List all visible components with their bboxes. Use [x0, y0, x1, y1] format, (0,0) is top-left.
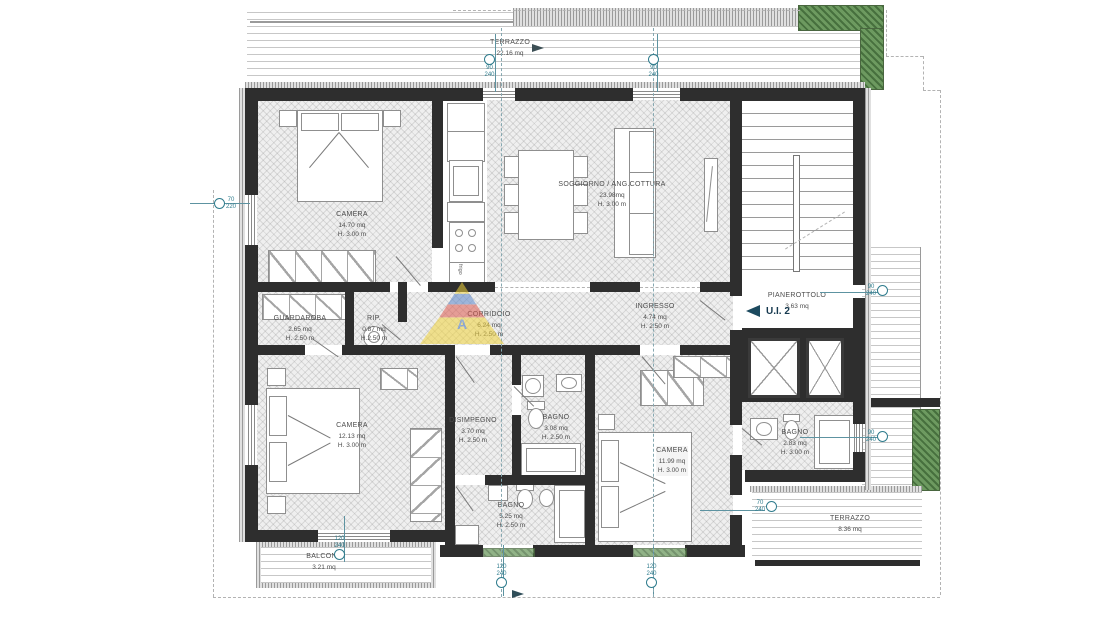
marker-window-south-right: 120 240 [646, 564, 657, 588]
bidet-bowl [539, 489, 554, 507]
window-sill-south-1 [483, 548, 535, 557]
marker-window-bagno-est: 90 240 [866, 430, 888, 443]
marker-value: 90 240 [866, 284, 876, 297]
fridge-label: frigo [457, 264, 463, 275]
kitchen-stove [449, 222, 485, 264]
sink-basin [561, 377, 577, 389]
room-label-camera1: CAMERA 14.70 mq H. 3.00 m [336, 210, 368, 240]
room-area: 2.83 mq [781, 439, 809, 449]
opening-dash-ingresso [640, 287, 700, 288]
room-name: BAGNO [542, 413, 570, 424]
opening-dash-living [495, 287, 590, 288]
room-label-camera2: CAMERA 12.13 mq H. 3.00 m [336, 421, 368, 451]
wall-corridor-top-1 [257, 282, 390, 292]
room-area: 8.36 mq [830, 525, 870, 535]
wall-north-2 [515, 88, 633, 101]
room-label-guardaroba: GUARDAROBA 2.65 mq H. 2.50 m [274, 314, 327, 344]
pillow [341, 113, 379, 131]
room-area: 4.74 mq [635, 313, 674, 323]
room-name: SOGGIORNO / ANG.COTTURA [558, 180, 665, 191]
nightstand [279, 110, 297, 127]
nightstand [267, 368, 286, 386]
shower-tray-inner [819, 420, 850, 464]
pillow [269, 442, 287, 482]
wall-camera1-living [432, 88, 443, 248]
room-label-disimpegno: DISIMPEGNO 3.70 mq H. 2.50 m [449, 416, 497, 446]
room-height: H. 3.00 m [336, 441, 368, 451]
wall-west-2 [245, 245, 258, 405]
room-height: H. 3.00 m [336, 230, 368, 240]
room-name: RIP. [361, 314, 387, 325]
floor-disimpegno [455, 355, 512, 475]
marker-circle [496, 577, 507, 588]
pillow [601, 486, 619, 528]
watermark-letter: A [420, 316, 504, 332]
room-name: CAMERA [336, 210, 368, 221]
wall-corridor-bottom-3 [490, 345, 640, 355]
kitchen-cabinet [447, 131, 485, 162]
pillow [269, 396, 287, 436]
room-name: PIANEROTTOLO [768, 291, 826, 302]
wall-camera3-east-1 [730, 455, 742, 495]
kitchen-fridge [449, 262, 485, 284]
burner [468, 229, 476, 237]
wardrobe-camera1 [268, 250, 376, 284]
kitchen-counter [447, 202, 485, 222]
marker-value: 120 240 [496, 564, 506, 577]
cavedio-shaft [806, 338, 844, 398]
boundary-dash-step2 [886, 56, 923, 57]
room-height: H. 3.00 m [781, 448, 809, 458]
room-height: H. 2.50 m [274, 334, 327, 344]
wall-east-3 [853, 452, 865, 470]
wall-east-2 [853, 298, 865, 424]
wall-north-3 [680, 88, 865, 101]
chair [573, 212, 588, 234]
shower-tray-inner [559, 490, 585, 538]
sofa-cushion [629, 213, 654, 255]
unit-arrow-icon [746, 305, 760, 317]
wall-guardaroba-rip [345, 282, 354, 355]
kitchen-cabinet [447, 103, 485, 133]
room-name: DISIMPEGNO [449, 416, 497, 427]
marker-circle [646, 577, 657, 588]
room-label-bagno-centro: BAGNO 3.08 mq H. 2.50 m [542, 413, 570, 443]
pillow [601, 440, 619, 482]
wall-corridor-top-3 [590, 282, 640, 292]
nightstand [383, 110, 401, 127]
marker-circle [214, 198, 225, 209]
room-area: 3.21 mq [306, 563, 342, 573]
wall-disimpegno-bagno-2 [512, 415, 521, 480]
marker-window-top-left: 90 240 [484, 54, 495, 78]
section-line-b [653, 28, 654, 597]
room-label-soggiorno: SOGGIORNO / ANG.COTTURA 23.98mq H. 3.00 … [558, 180, 665, 210]
marker-window-west: 70 220 [214, 197, 236, 210]
room-name: TERRAZZO [830, 514, 870, 525]
sofa-cushion [629, 131, 654, 173]
marker-value: 120 240 [646, 564, 656, 577]
wall-west-1 [245, 88, 258, 195]
watermark-logo: A [420, 282, 504, 344]
room-area: 11.99 mq [656, 457, 688, 467]
room-label-terrazzo-sud: TERRAZZO 8.36 mq [830, 514, 870, 534]
room-label-rip: RIP. 0.87 mq H.2.50 m [361, 314, 387, 344]
chair [573, 156, 588, 178]
chair [504, 212, 519, 234]
pillow [301, 113, 339, 131]
wall-corridor-bottom-4 [680, 345, 733, 355]
wardrobe-camera2 [410, 428, 442, 522]
chair [504, 156, 519, 178]
room-label-bagno-est: BAGNO 2.83 mq H. 3.00 m [781, 428, 809, 458]
boundary-dash-bottom [213, 597, 940, 598]
wall-camera3-east-2 [730, 515, 742, 557]
marker-balcony-door: 120 240 [334, 536, 345, 560]
wall-north-1 [245, 88, 483, 101]
room-area: 2.65 mq [274, 325, 327, 335]
window-sill-south-2 [633, 548, 687, 557]
wall-camera2-disimpegno [445, 355, 455, 557]
marker-door-landing-terrace: 90 240 [866, 284, 888, 297]
marker-window-top-right: 90 240 [648, 54, 659, 78]
room-name: GUARDAROBA [274, 314, 327, 325]
room-name: CAMERA [336, 421, 368, 432]
marker-window-south-left: 120 240 [496, 564, 507, 588]
marker-stem [495, 34, 496, 92]
window-north-2 [633, 91, 680, 98]
room-area: 3.08 mq [542, 424, 570, 434]
room-height: H. 2.50 m [635, 322, 674, 332]
room-height: H. 2.50 m [542, 433, 570, 443]
planter-east [912, 409, 940, 491]
washer-drum [525, 378, 541, 394]
marker-value: 90 240 [484, 65, 494, 78]
unit-label: U.I. 2 [766, 306, 790, 317]
room-area: 14.70 mq [336, 221, 368, 231]
wall-corridor-top-4 [700, 282, 733, 292]
boundary-dash-top [453, 10, 800, 11]
marker-value: 70 220 [226, 197, 236, 210]
marker-value: 70 240 [755, 500, 765, 513]
nightstand [598, 414, 615, 430]
burner [455, 244, 463, 252]
wardrobe-ingresso [673, 356, 735, 378]
wall-rip-corridoio-2 [398, 345, 407, 355]
room-area: 3.70 mq [449, 427, 497, 437]
marker-circle [648, 54, 659, 65]
kitchen-sink-basin [453, 166, 479, 196]
boundary-dash-right [940, 90, 941, 595]
boundary-dash-step4 [923, 90, 940, 91]
marker-value: 90 240 [866, 430, 876, 443]
room-area: 23.98mq [558, 191, 665, 201]
room-height: H.2.50 m [361, 334, 387, 344]
burner [468, 244, 476, 252]
marker-circle [877, 431, 888, 442]
wall-stair-west-2 [730, 330, 742, 425]
marker-circle [484, 54, 495, 65]
wall-south-mid-2 [533, 545, 633, 557]
balcony-decking [261, 547, 431, 583]
balcony-door [318, 533, 390, 540]
room-height: H. 2.50 m [449, 436, 497, 446]
wall-east-1 [853, 88, 865, 285]
window-north-1 [483, 91, 515, 98]
room-area: 12.13 mq [336, 432, 368, 442]
floor-plan: frigo [0, 0, 1112, 628]
planter-top-right [860, 28, 884, 90]
boundary-dash-step1 [886, 10, 887, 56]
marker-circle [334, 549, 345, 560]
wall-south-left-1 [245, 530, 318, 542]
window-west-2 [248, 405, 255, 465]
wall-corridor-bottom-1 [257, 345, 305, 355]
marker-circle [877, 285, 888, 296]
wardrobe-camera2-top [380, 368, 418, 390]
wall-disimpegno-bagno-1 [512, 355, 521, 385]
boundary-dash-left [213, 190, 214, 597]
marker-circle [766, 501, 777, 512]
boundary-arrow-icon [512, 590, 524, 598]
room-label-camera3: CAMERA 11.99 mq H. 3.00 m [656, 446, 688, 476]
window-east-bath [856, 424, 863, 452]
room-name: CAMERA [656, 446, 688, 457]
wall-stair-west-1 [730, 100, 742, 296]
terrace-arrow-icon [532, 44, 544, 52]
nightstand [267, 496, 286, 514]
wall-rip-corridoio-1 [398, 282, 407, 322]
room-height: H. 3.00 m [558, 200, 665, 210]
boundary-dash-step3 [923, 56, 924, 90]
wall-bagno-camera3 [585, 355, 595, 557]
marker-value: 90 240 [648, 65, 658, 78]
room-label-ingresso: INGRESSO 4.74 mq H. 2.50 m [635, 302, 674, 332]
room-height: H. 3.00 m [656, 466, 688, 476]
stair-stringer [793, 155, 800, 272]
terrace-south-parapet [755, 560, 920, 566]
bath-cabinet [455, 525, 479, 545]
room-name: INGRESSO [635, 302, 674, 313]
marker-door-terrace-south: 70 240 [755, 500, 777, 513]
marker-value: 120 240 [334, 536, 344, 549]
sink [488, 485, 508, 501]
sink-basin [756, 422, 772, 436]
shower-tray-inner [526, 448, 576, 472]
room-area: 0.87 mq [361, 325, 387, 335]
burner [455, 229, 463, 237]
chair [504, 184, 519, 206]
wall-south-right [745, 470, 865, 482]
elevator-shaft [748, 338, 800, 398]
